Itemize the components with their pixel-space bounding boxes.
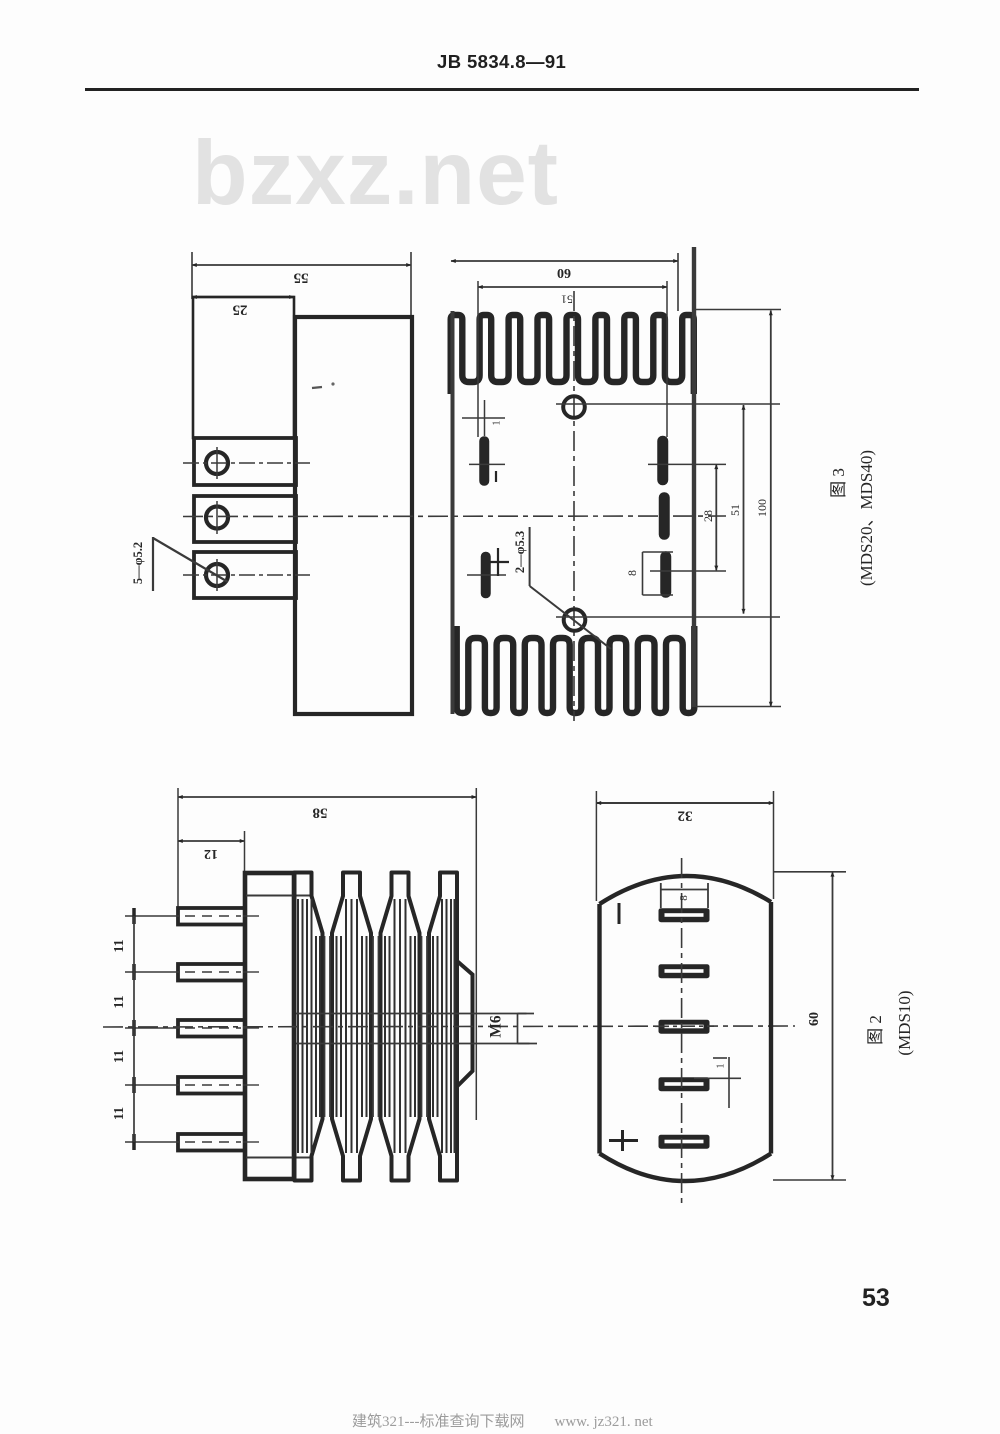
svg-text:11: 11	[112, 939, 127, 952]
svg-text:8: 8	[625, 570, 639, 576]
svg-text:1: 1	[491, 421, 502, 426]
svg-text:51: 51	[561, 292, 573, 306]
svg-text:1: 1	[715, 1064, 726, 1069]
svg-text:25: 25	[233, 302, 248, 318]
svg-text:32: 32	[678, 808, 693, 824]
svg-text:60: 60	[557, 265, 571, 280]
svg-text:60: 60	[807, 1012, 822, 1026]
svg-text:28: 28	[701, 510, 715, 522]
svg-text:图 2: 图 2	[866, 1015, 885, 1045]
svg-text:图 3: 图 3	[829, 468, 848, 498]
svg-text:51: 51	[728, 504, 742, 516]
svg-text:5—φ5.2: 5—φ5.2	[131, 542, 145, 584]
svg-text:8: 8	[678, 895, 690, 901]
svg-text:2—φ5.3: 2—φ5.3	[513, 531, 527, 573]
svg-text:M6: M6	[488, 1015, 505, 1038]
svg-text:(MDS10): (MDS10)	[895, 990, 914, 1055]
svg-text:100: 100	[755, 499, 769, 517]
svg-text:58: 58	[313, 805, 328, 821]
svg-text:11: 11	[112, 1107, 127, 1120]
svg-text:11: 11	[112, 995, 127, 1008]
svg-text:12: 12	[204, 846, 218, 861]
svg-text:(MDS20、MDS40): (MDS20、MDS40)	[857, 450, 876, 586]
svg-text:11: 11	[112, 1050, 127, 1063]
svg-text:55: 55	[294, 270, 309, 286]
